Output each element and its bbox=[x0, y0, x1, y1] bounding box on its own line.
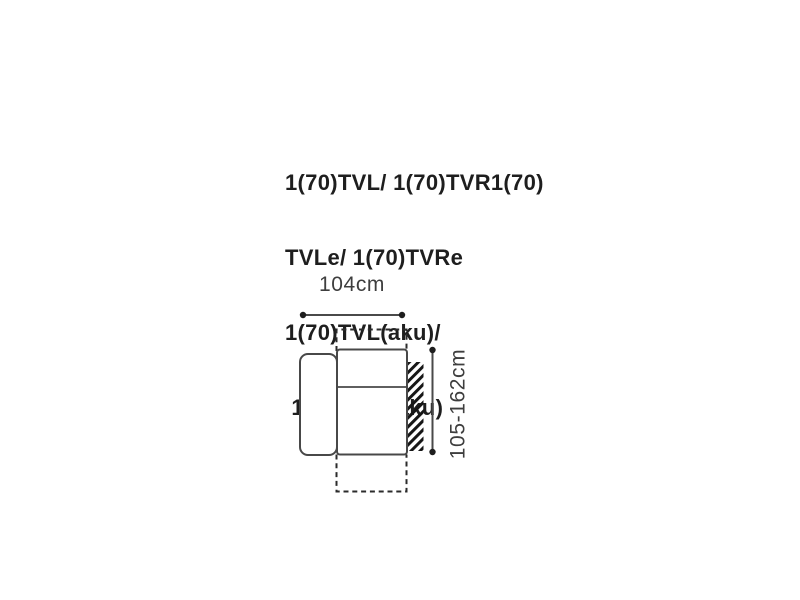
dimension-end-dot bbox=[429, 449, 435, 455]
extension-outline-top bbox=[337, 330, 407, 352]
seat-body-outline bbox=[337, 350, 407, 455]
furniture-dimension-diagram: 104cm 105-162cm bbox=[0, 0, 800, 600]
extension-outline-bottom bbox=[337, 455, 407, 492]
page: 1(70)TVL/ 1(70)TVR1(70) TVLe/ 1(70)TVRe … bbox=[0, 0, 800, 600]
height-dimension-label: 105-162cm bbox=[447, 349, 470, 459]
dimension-end-dot bbox=[429, 347, 435, 353]
dimension-end-dot bbox=[300, 312, 306, 318]
wall-hatch-pattern bbox=[408, 362, 424, 451]
armrest-outline bbox=[300, 354, 337, 455]
width-dimension-line bbox=[300, 312, 405, 318]
height-dimension-line bbox=[429, 347, 435, 455]
width-dimension-label: 104cm bbox=[319, 273, 385, 296]
dimension-end-dot bbox=[399, 312, 405, 318]
